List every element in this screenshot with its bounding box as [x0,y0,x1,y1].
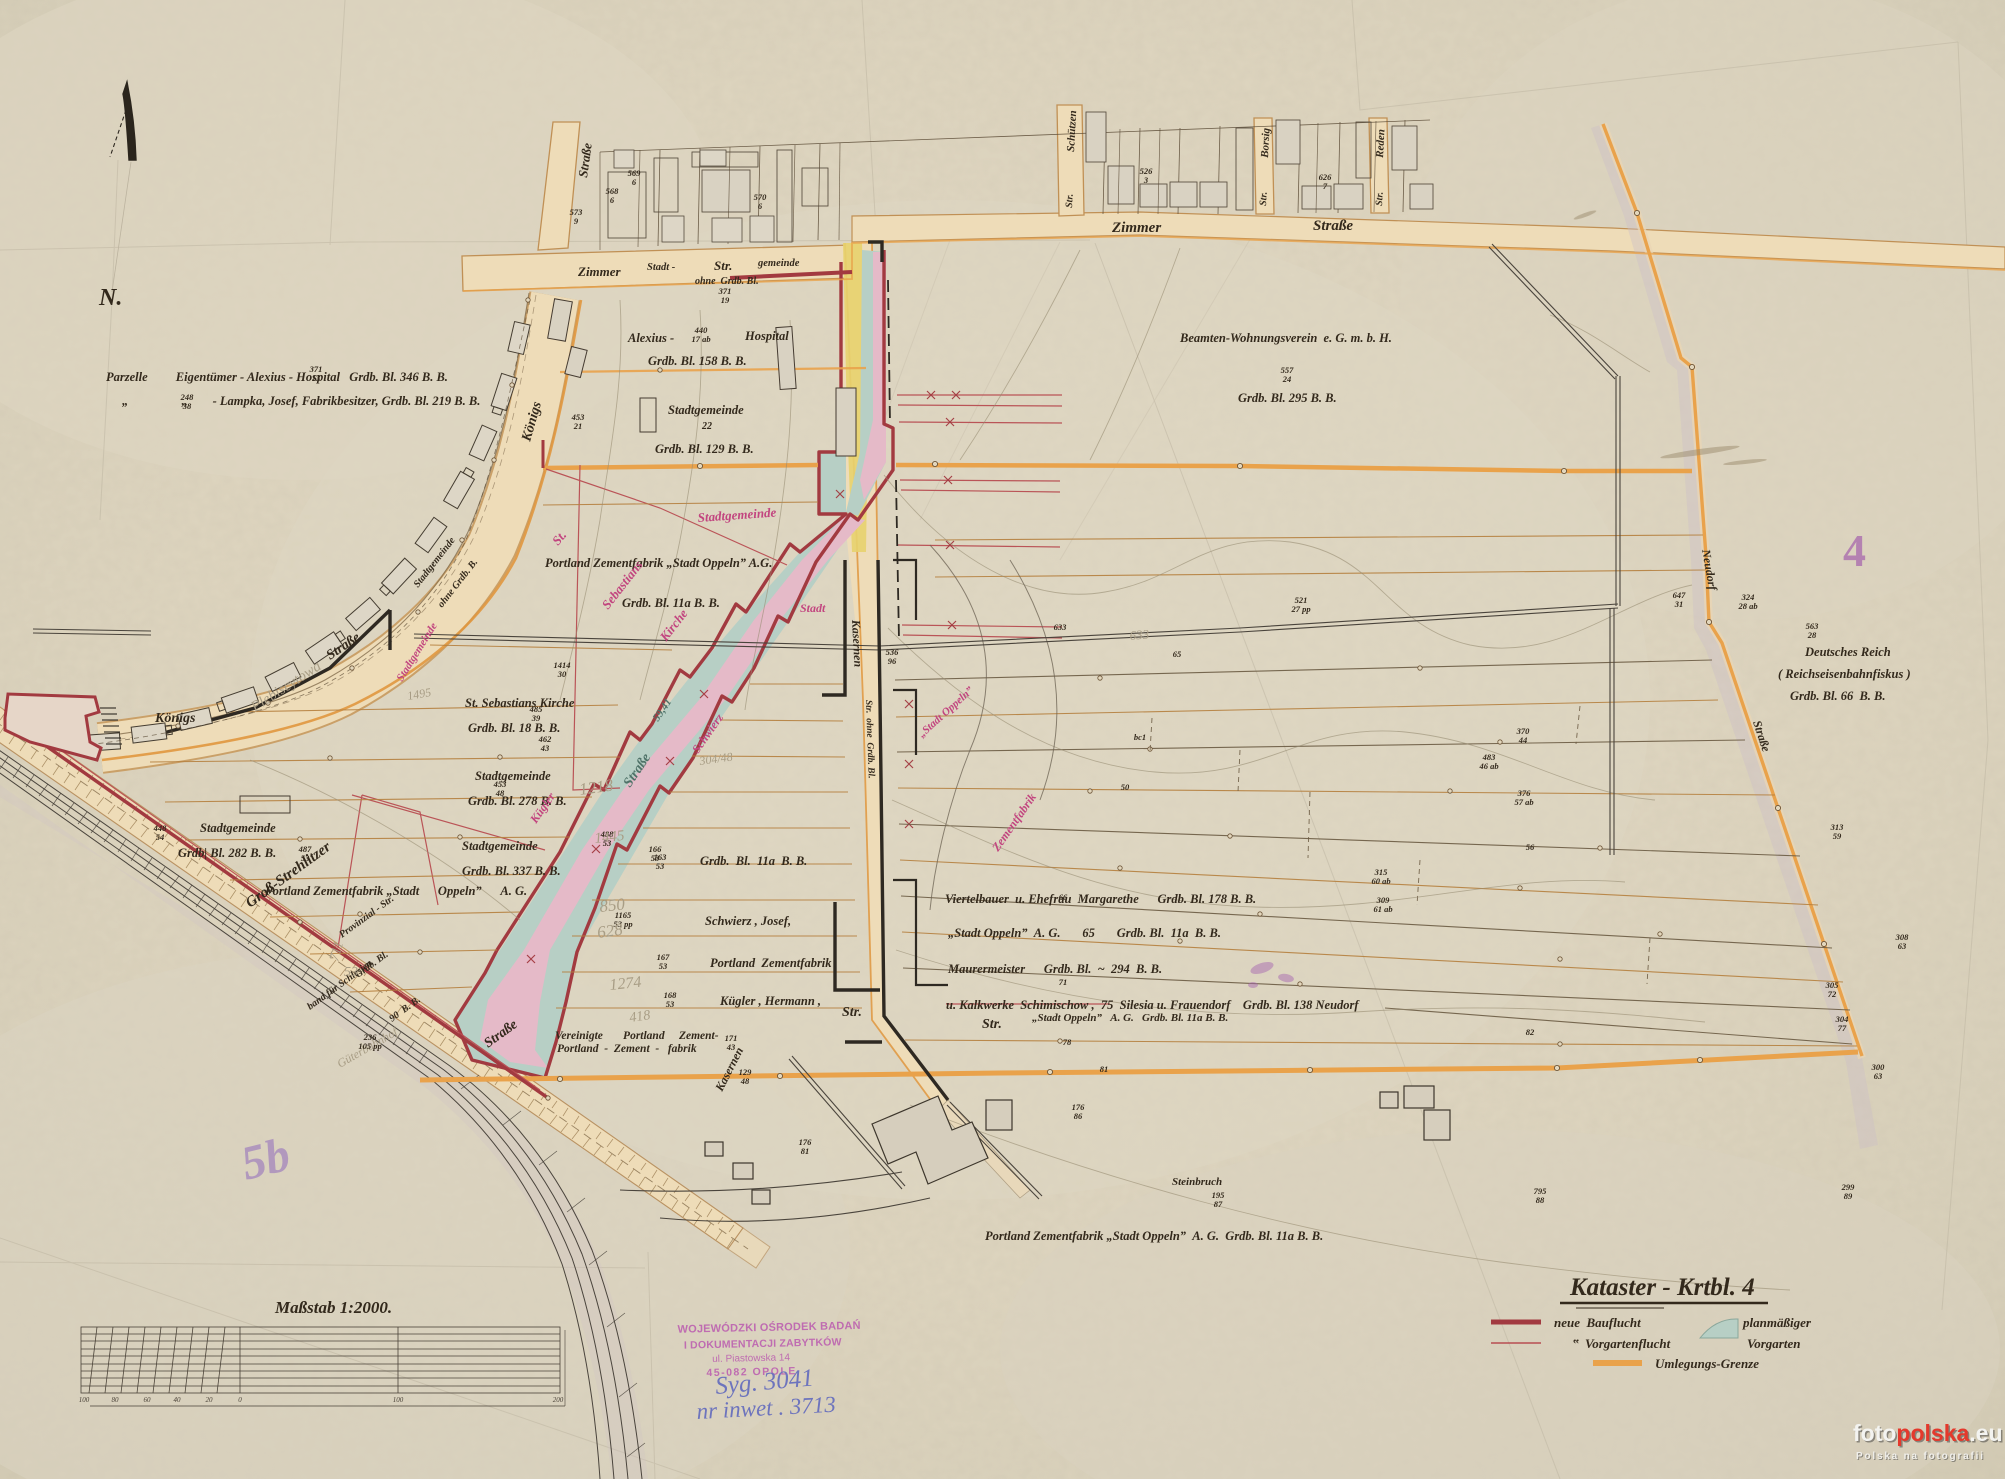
svg-text:Stadtgemeinde: Stadtgemeinde [200,821,276,835]
svg-text:22: 22 [701,421,712,432]
svg-text:Portland Zementfabrik „Stadt O: Portland Zementfabrik „Stadt Oppeln” A.G… [545,556,772,570]
svg-text:13: 13 [312,373,321,383]
svg-text:86: 86 [1074,1111,1083,1121]
svg-text:43: 43 [726,1042,736,1052]
svg-text:Grdb. Bl. 158 B. B.: Grdb. Bl. 158 B. B. [648,354,747,368]
svg-text:63: 63 [1898,941,1907,951]
svg-text:60 ab: 60 ab [1371,876,1390,886]
svg-text:56: 56 [1526,842,1535,852]
svg-text:105 pp: 105 pp [358,1041,381,1051]
svg-text:Hospital: Hospital [744,329,789,343]
svg-text:78: 78 [1063,1037,1072,1047]
svg-text:38: 38 [182,401,192,411]
svg-text:96: 96 [888,656,897,666]
svg-text:N.: N. [98,285,122,311]
svg-text:89: 89 [1844,1191,1853,1201]
svg-text:Portland - Zement - fabri: Portland - Zement - fabrik [557,1043,697,1055]
svg-text:Borsig: Borsig [1259,127,1273,159]
svg-text:3: 3 [1143,175,1149,185]
svg-text:Str.: Str. [1064,193,1076,208]
svg-text:81: 81 [1100,1064,1109,1074]
svg-text:Beamten-Wohnungsverein e. G.: Beamten-Wohnungsverein e. G. m. b. H. [1179,331,1392,345]
svg-text:63: 63 [1874,1071,1883,1081]
svg-text:633: 633 [1129,626,1150,643]
svg-text:31: 31 [1674,599,1684,609]
svg-text:Str.: Str. [842,1005,862,1020]
svg-text:17 ab: 17 ab [691,334,710,344]
svg-text:neue Bauflucht: neue Bauflucht [1554,1315,1641,1330]
svg-text:Portland Zementfabrik: Portland Zementfabrik [710,956,832,970]
svg-text:Grdb. Bl. 66 B. B.: Grdb. Bl. 66 B. B. [1790,689,1886,703]
svg-text:„Stadt Oppeln” A. G. Grdb.: „Stadt Oppeln” A. G. Grdb. Bl. 11a B. B. [1032,1012,1228,1024]
svg-text:gemeinde: gemeinde [757,258,800,269]
svg-text:628: 628 [596,920,624,942]
svg-text:Vorgarten: Vorgarten [1747,1336,1800,1351]
svg-text:82: 82 [1526,1027,1535,1037]
svg-text:Zimmer: Zimmer [577,264,622,279]
svg-text:59: 59 [1833,831,1842,841]
svg-text:Grdb. Bl. 11a B. B.: Grdb. Bl. 11a B. B. [700,854,807,868]
svg-text:Grdb. Bl. 337 B. B.: Grdb. Bl. 337 B. B. [462,864,561,878]
svg-text:Stadtgemeinde: Stadtgemeinde [668,403,744,417]
svg-text:40: 40 [174,1396,182,1404]
svg-text:57 ab: 57 ab [1514,797,1533,807]
svg-text:( Reichseisenbahnfiskus ): ( Reichseisenbahnfiskus ) [1778,667,1911,681]
svg-text:100: 100 [393,1396,404,1404]
svg-text:61 ab: 61 ab [1373,904,1392,914]
svg-text:30: 30 [557,669,567,679]
svg-text:80: 80 [112,1396,120,1404]
svg-text:Straße: Straße [1313,218,1353,234]
svg-text:44: 44 [1518,735,1528,745]
svg-text:418: 418 [628,1008,651,1026]
svg-text:24: 24 [1282,374,1292,384]
svg-text:„ „ - L: „ „ - Lampka, Josef, Fabrikbesitzer, Grd… [122,394,480,408]
svg-text:72: 72 [1828,989,1837,999]
svg-text:53: 53 [301,853,310,863]
svg-text:65: 65 [1173,649,1182,659]
svg-text:Kasernen: Kasernen [849,618,866,667]
svg-text:54: 54 [156,832,165,842]
svg-text:53: 53 [651,853,660,863]
svg-text:850: 850 [598,894,626,916]
svg-text:48: 48 [740,1076,750,1086]
svg-text:Grdb. Bl. 18 B. B.: Grdb. Bl. 18 B. B. [468,721,560,735]
svg-text:88: 88 [1536,1195,1545,1205]
svg-text:28 ab: 28 ab [1737,601,1757,611]
svg-text:Portland Zementfabrik „Stadt: Portland Zementfabrik „Stadt Oppeln” A. … [265,884,527,898]
svg-text:87: 87 [1214,1199,1223,1209]
svg-text:Deutsches Reich: Deutsches Reich [1804,645,1891,659]
svg-text:St. Sebastians Kirche: St. Sebastians Kirche [465,696,575,710]
svg-text:Portland Zementfabrik „Stadt O: Portland Zementfabrik „Stadt Oppeln” A. … [985,1229,1323,1243]
svg-text:Maßstab 1:2000.: Maßstab 1:2000. [274,1298,392,1317]
svg-text:28: 28 [1807,630,1817,640]
svg-text:Str.: Str. [1374,191,1386,206]
svg-text:Parzelle Eigentümer -: Parzelle Eigentümer - Alexius - Hospital… [106,370,448,384]
svg-text:1445: 1445 [594,828,626,847]
svg-text:81: 81 [801,1146,810,1156]
svg-text:Schwierz , Josef,: Schwierz , Josef, [705,914,791,928]
svg-text:100: 100 [79,1396,90,1404]
svg-text:Maurermeister Grdb. Bl.: Maurermeister Grdb. Bl. ~ 294 B. B. [947,962,1162,976]
svg-text:bc1: bc1 [1134,732,1146,742]
svg-text:633: 633 [1054,622,1068,632]
svg-text:39: 39 [531,713,541,723]
svg-text:Kataster - Krtbl. 4: Kataster - Krtbl. 4 [1569,1274,1755,1301]
svg-text:77: 77 [1838,1023,1847,1033]
svg-text:27 pp: 27 pp [1290,604,1310,614]
svg-text:Str.: Str. [714,258,732,273]
svg-text:‟ Vorgartenflucht: ‟ Vorgartenflucht [1572,1336,1671,1351]
svg-text:20: 20 [206,1396,214,1404]
svg-text:Str.: Str. [982,1017,1002,1032]
svg-text:„Stadt Oppeln” A. G. 65: „Stadt Oppeln” A. G. 65 Grdb. Bl. 11a B.… [948,926,1221,940]
svg-text:fotopolska.eu: fotopolska.eu [1853,1420,2003,1446]
svg-text:Zimmer: Zimmer [1111,220,1161,236]
svg-text:Polska na fotografii: Polska na fotografii [1856,1451,1985,1462]
svg-text:Str.: Str. [1258,191,1270,206]
svg-text:21: 21 [573,421,583,431]
svg-text:43: 43 [540,743,550,753]
svg-text:Kügler , Hermann ,: Kügler , Hermann , [719,994,821,1008]
svg-text:4: 4 [1843,525,1866,576]
svg-text:Stadt: Stadt [800,601,826,615]
svg-text:50: 50 [1121,782,1130,792]
svg-text:71: 71 [1059,977,1068,987]
svg-text:planmäßiger: planmäßiger [1742,1315,1812,1330]
svg-text:Königs: Königs [154,711,196,726]
svg-text:200: 200 [553,1396,564,1404]
svg-text:Stadtgemeinde: Stadtgemeinde [475,769,551,783]
svg-text:48: 48 [495,788,505,798]
svg-text:Steinbruch: Steinbruch [1172,1176,1222,1188]
svg-text:Grdb. Bl. 129 B. B.: Grdb. Bl. 129 B. B. [655,442,754,456]
svg-text:46 ab: 46 ab [1478,761,1498,771]
svg-text:60: 60 [144,1396,152,1404]
svg-text:53: 53 [344,965,358,980]
svg-text:Grdb. Bl. 11a B. B.: Grdb. Bl. 11a B. B. [622,596,720,610]
svg-text:ul. Piastowska 14: ul. Piastowska 14 [712,1352,790,1365]
svg-text:Grdb. Bl. 295 B. B.: Grdb. Bl. 295 B. B. [1238,391,1337,405]
svg-text:66: 66 [1059,892,1068,902]
svg-text:Grdb| Bl. 282 B. B.: Grdb| Bl. 282 B. B. [178,846,276,860]
svg-text:Reden: Reden [1374,129,1388,159]
svg-text:u. Kalkwerke Schimischow , 7: u. Kalkwerke Schimischow , 75 Silesia u.… [946,998,1360,1012]
svg-text:Vereinigte Portland: Vereinigte Portland Zement- [555,1030,719,1042]
svg-text:53: 53 [666,999,675,1009]
svg-text:Schützen: Schützen [1065,110,1079,152]
svg-text:19: 19 [721,295,730,305]
svg-text:Viertelbauer u. Ehefrau Marg: Viertelbauer u. Ehefrau Margarethe Grdb.… [945,892,1256,906]
svg-text:1274: 1274 [609,974,643,994]
svg-text:53: 53 [659,961,668,971]
svg-text:Umlegungs-Grenze: Umlegungs-Grenze [1655,1356,1759,1371]
svg-text:0: 0 [238,1396,242,1404]
svg-text:Alexius -: Alexius - [627,331,674,345]
svg-text:Stadtgemeinde: Stadtgemeinde [462,839,538,853]
svg-text:Stadt -: Stadt - [647,262,676,273]
